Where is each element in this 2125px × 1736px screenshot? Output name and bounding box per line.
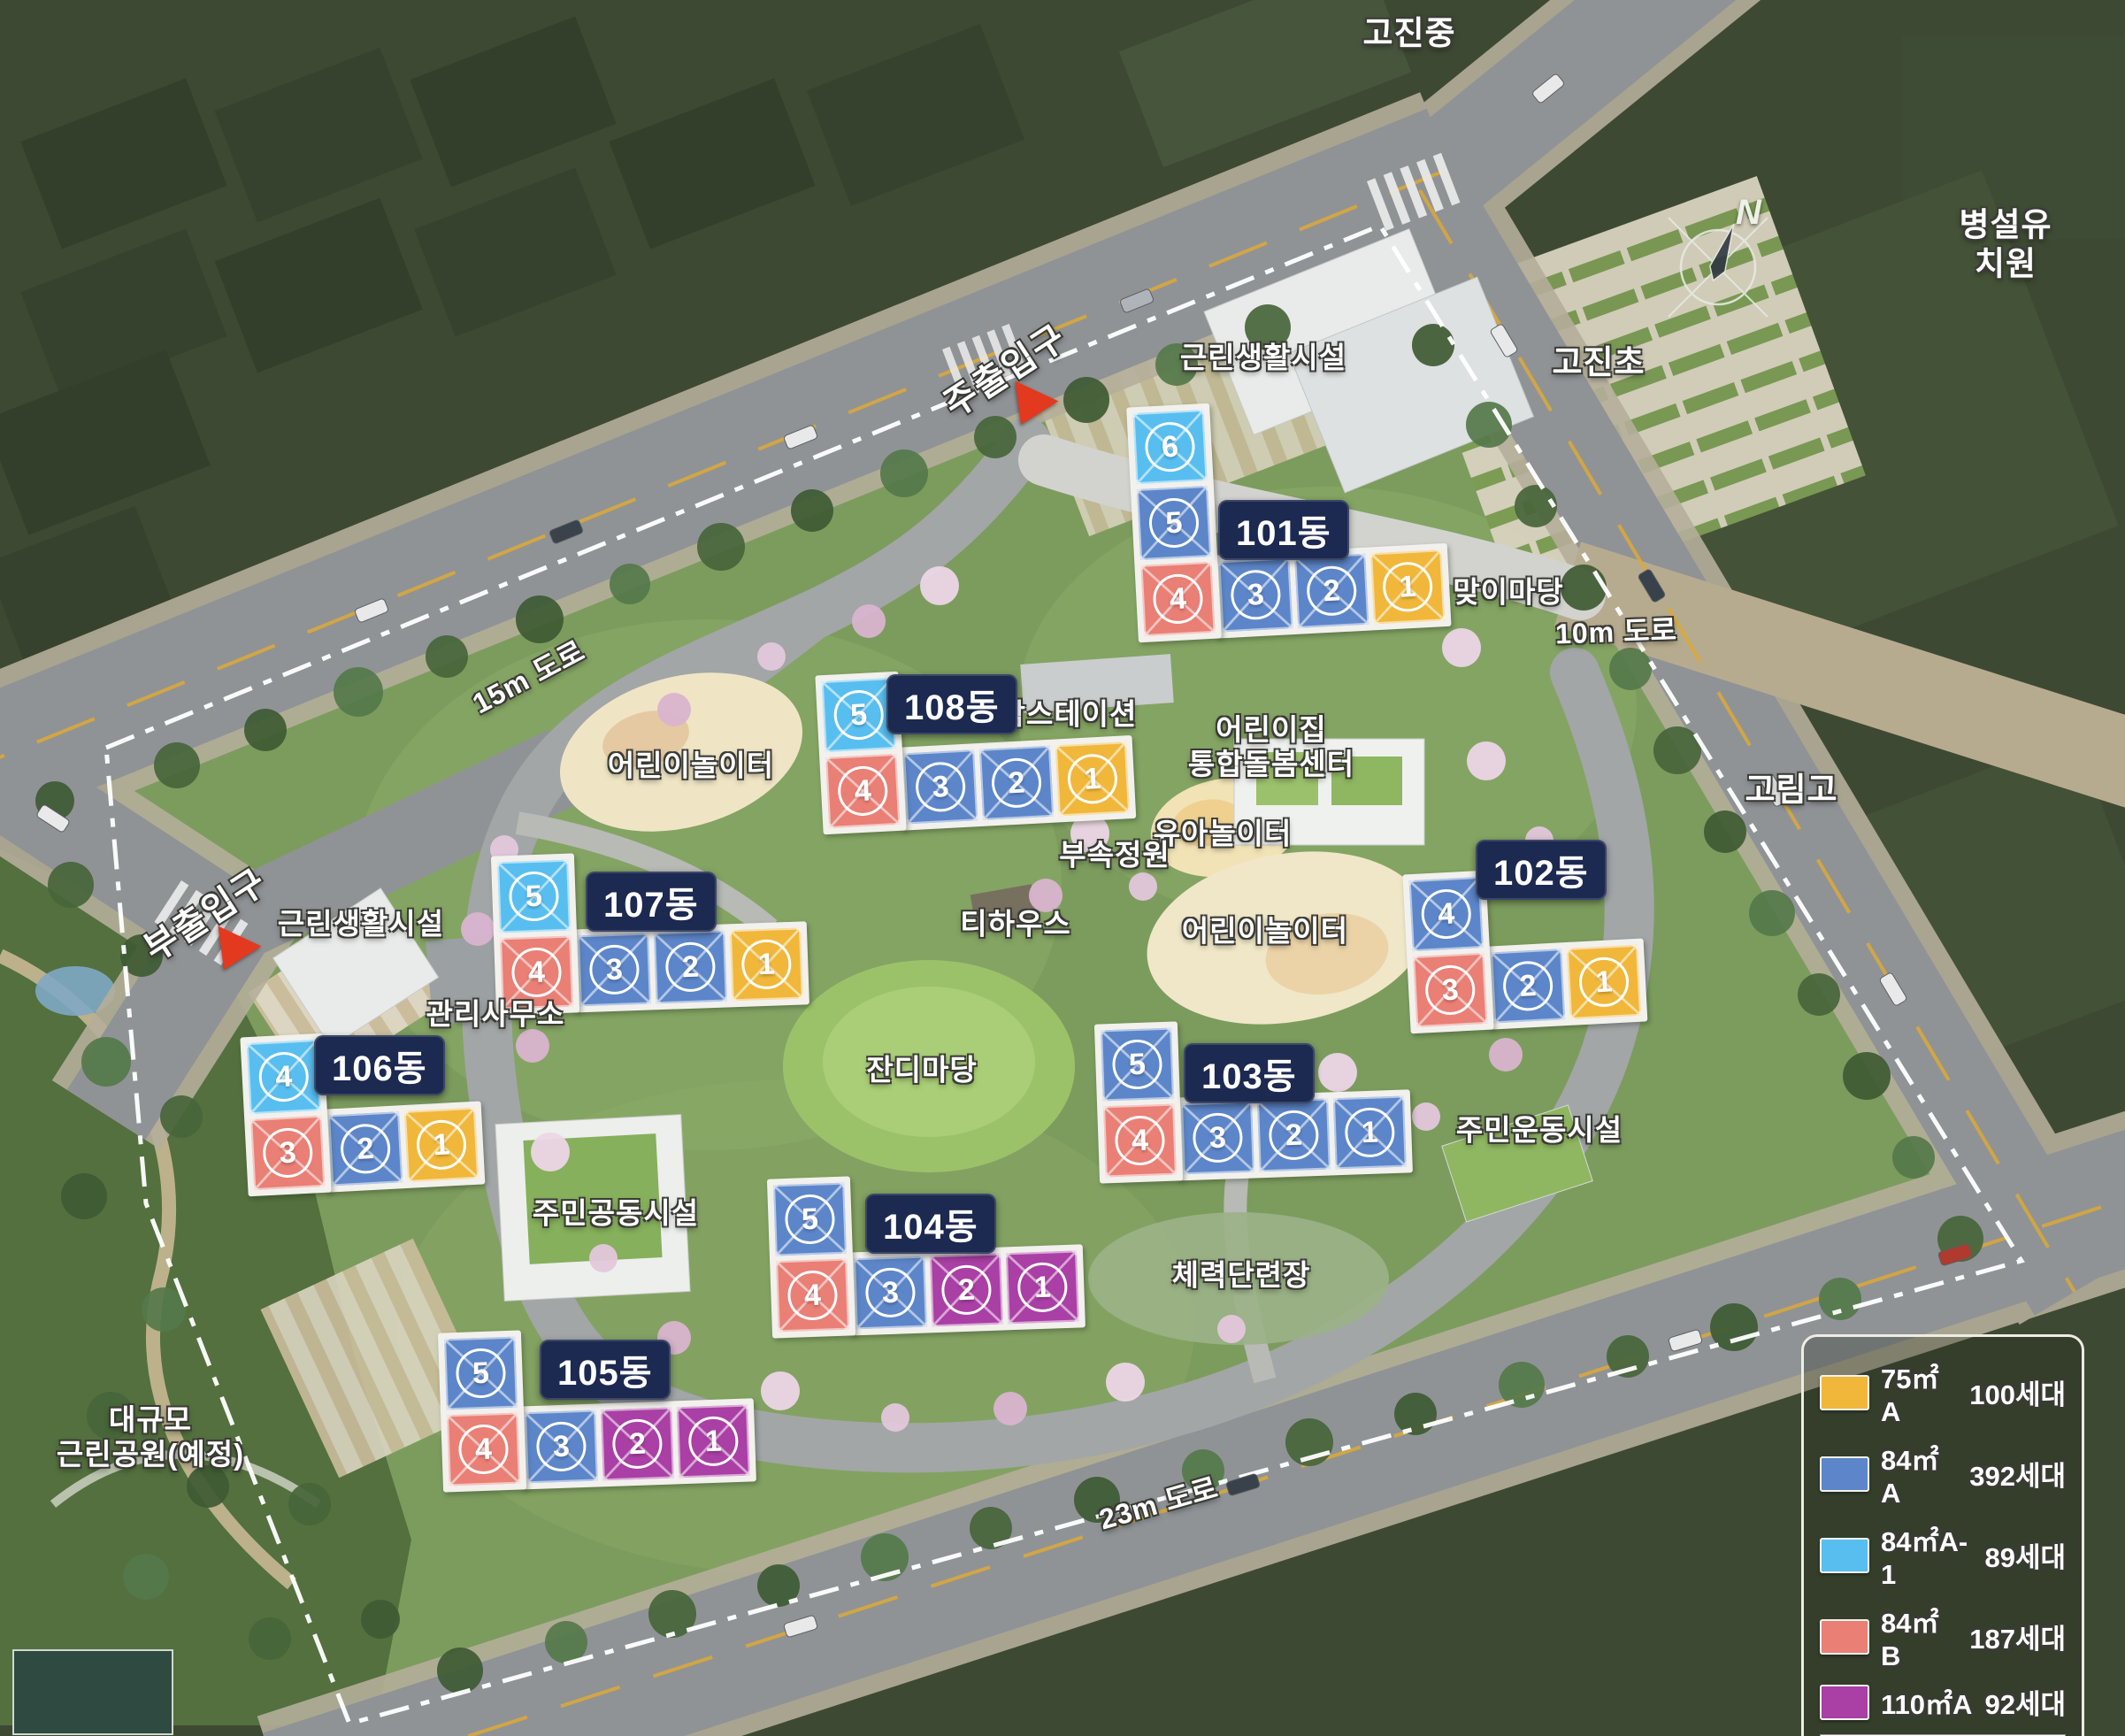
legend-chip-2	[1820, 1538, 1869, 1573]
building-107-wing-v: 54	[491, 853, 579, 1015]
label-neighborhood-facility-left: 근린생활시설	[278, 908, 444, 942]
unit-number: 5	[456, 1348, 507, 1399]
legend-count-0: 100세대	[1969, 1372, 2066, 1412]
building-107-wing-h: 321	[572, 921, 809, 1012]
building-102-wing-h: 21	[1484, 938, 1648, 1029]
legend-row-0: 75㎡A100세대	[1820, 1356, 2066, 1428]
building-106-label: 106동	[314, 1035, 445, 1095]
legend: 75㎡A100세대84㎡A392세대84㎡A-189세대84㎡B187세대110…	[1801, 1334, 2084, 1736]
unit-block-101-4: 4	[1140, 562, 1215, 636]
unit-block-104-1: 1	[1006, 1251, 1079, 1325]
unit-block-103-4: 4	[1103, 1104, 1177, 1178]
label-community-facility: 주민공동시설	[533, 1197, 699, 1232]
label-lawn-yard: 잔디마당	[866, 1054, 977, 1088]
label-kids-playground-center: 어린이놀이터	[1182, 915, 1348, 949]
site-plan-map: 654 321 54 321 54 321 43 21 54 321 54 32…	[0, 0, 2125, 1736]
unit-block-101-5: 5	[1137, 486, 1211, 560]
unit-block-106-4: 4	[247, 1040, 321, 1114]
unit-number: 1	[416, 1118, 468, 1171]
unit-block-107-2: 2	[654, 931, 727, 1004]
unit-block-105-2: 2	[601, 1408, 674, 1481]
unit-number: 3	[864, 1267, 916, 1318]
unit-block-103-1: 1	[1333, 1096, 1407, 1170]
unit-block-101-2: 2	[1294, 554, 1369, 628]
unit-number: 3	[1192, 1112, 1243, 1164]
unit-block-101-1: 1	[1370, 549, 1445, 624]
unit-number: 5	[785, 1194, 836, 1245]
building-104-label: 104동	[865, 1194, 996, 1254]
building-104: 54 321	[767, 1176, 855, 1338]
unit-number: 2	[340, 1123, 392, 1175]
unit-number: 4	[1420, 888, 1472, 941]
label-welcome-yard: 맞이마당	[1453, 576, 1563, 611]
unit-number: 6	[1144, 421, 1196, 473]
label-kindergarten: 병설유치원	[1946, 205, 2066, 282]
unit-block-108-2: 2	[979, 746, 1054, 820]
unit-number: 3	[535, 1421, 587, 1472]
unit-number: 1	[1344, 1107, 1395, 1158]
unit-block-106-2: 2	[328, 1111, 403, 1186]
unit-block-105-3: 3	[525, 1410, 598, 1484]
legend-rows: 75㎡A100세대84㎡A392세대84㎡A-189세대84㎡B187세대110…	[1820, 1356, 2066, 1722]
label-high-school: 고림고	[1745, 771, 1837, 810]
unit-block-101-6: 6	[1132, 410, 1207, 484]
unit-block-106-1: 1	[404, 1108, 479, 1182]
legend-row-2: 84㎡A-189세대	[1820, 1519, 2066, 1591]
unit-number: 4	[511, 947, 563, 998]
unit-number: 1	[1066, 753, 1118, 805]
unit-number: 5	[1112, 1039, 1163, 1090]
unit-block-102-3: 3	[1413, 953, 1487, 1027]
unit-number: 1	[1578, 956, 1630, 1008]
legend-type-1: 84㎡A	[1881, 1438, 1958, 1509]
label-kids-playground-left: 어린이놀이터	[608, 749, 774, 784]
unit-number: 3	[262, 1127, 314, 1179]
unit-block-108-4: 4	[825, 754, 900, 828]
unit-block-105-5: 5	[444, 1337, 518, 1410]
unit-number: 4	[787, 1270, 839, 1321]
building-107-label: 107동	[586, 872, 717, 932]
building-108-wing-h: 321	[897, 735, 1137, 831]
building-101-wing-v: 654	[1126, 403, 1222, 643]
unit-number: 2	[940, 1264, 992, 1316]
unit-number: 5	[509, 871, 560, 922]
unit-number: 4	[257, 1051, 310, 1103]
building-105-wing-h: 321	[518, 1398, 756, 1489]
legend-type-0: 75㎡A	[1881, 1356, 1958, 1428]
building-105: 54 321	[438, 1330, 526, 1492]
unit-block-103-2: 2	[1257, 1099, 1331, 1172]
unit-number: 3	[915, 761, 967, 813]
building-104-wing-v: 54	[767, 1176, 855, 1338]
unit-block-102-2: 2	[1491, 949, 1565, 1023]
building-104-wing-h: 321	[848, 1244, 1086, 1335]
legend-row-3: 84㎡B187세대	[1820, 1601, 2066, 1672]
building-101-label: 101동	[1218, 500, 1349, 560]
unit-number: 4	[458, 1424, 510, 1475]
legend-chip-3	[1820, 1619, 1869, 1655]
building-108-label: 108동	[886, 674, 1017, 734]
building-101: 654 321	[1126, 403, 1222, 643]
unit-number: 1	[740, 939, 792, 990]
label-annex-garden: 부속정원	[1059, 839, 1170, 873]
unit-block-103-3: 3	[1181, 1102, 1254, 1175]
unit-number: 4	[1115, 1115, 1166, 1166]
legend-row-4: 110㎡A92세대	[1820, 1682, 2066, 1722]
unit-number: 2	[1268, 1110, 1319, 1161]
unit-block-104-2: 2	[930, 1254, 1003, 1327]
unit-block-107-5: 5	[497, 860, 571, 933]
label-fitness-area: 체력단련장	[1172, 1259, 1311, 1294]
label-elementary-school: 고진초	[1552, 343, 1645, 382]
legend-count-3: 187세대	[1969, 1617, 2066, 1656]
building-107: 54 321	[491, 853, 579, 1015]
unit-block-108-3: 3	[903, 749, 978, 824]
unit-block-102-1: 1	[1567, 945, 1641, 1019]
legend-row-1: 84㎡A392세대	[1820, 1438, 2066, 1509]
unit-number: 5	[1148, 497, 1201, 549]
unit-number: 2	[611, 1418, 663, 1470]
building-103-label: 103동	[1184, 1043, 1315, 1103]
building-105-label: 105동	[540, 1340, 671, 1400]
legend-chip-1	[1820, 1456, 1869, 1492]
unit-number: 5	[832, 689, 885, 741]
unit-block-105-1: 1	[677, 1405, 750, 1479]
unit-block-101-3: 3	[1218, 557, 1293, 632]
label-tea-house: 티하우스	[960, 908, 1070, 942]
unit-number: 3	[1424, 964, 1477, 1017]
unit-block-107-1: 1	[730, 928, 803, 1002]
unit-block-102-4: 4	[1409, 877, 1484, 951]
unit-block-108-5: 5	[822, 678, 896, 752]
label-management-office: 관리사무소	[426, 998, 565, 1033]
building-102-label: 102동	[1476, 840, 1607, 900]
building-103: 54 321	[1094, 1021, 1183, 1183]
unit-block-104-4: 4	[776, 1259, 849, 1333]
legend-count-1: 392세대	[1969, 1454, 2066, 1494]
legend-chip-4	[1820, 1685, 1869, 1720]
legend-count-4: 92세대	[1984, 1682, 2066, 1722]
unit-number: 1	[1016, 1262, 1068, 1313]
legend-count-2: 89세대	[1984, 1535, 2066, 1575]
legend-type-3: 84㎡B	[1881, 1601, 1958, 1672]
label-toddler-playground: 유아놀이터	[1154, 818, 1293, 852]
legend-type-4: 110㎡A	[1881, 1682, 1973, 1722]
building-103-wing-v: 54	[1094, 1021, 1183, 1183]
legend-type-2: 84㎡A-1	[1881, 1519, 1973, 1591]
label-neighborhood-facility-top: 근린생활시설	[1180, 342, 1346, 376]
unit-number: 1	[687, 1416, 739, 1467]
unit-number: 2	[1306, 565, 1358, 617]
unit-number: 2	[664, 941, 716, 993]
unit-number: 2	[1502, 960, 1554, 1012]
unit-block-104-5: 5	[773, 1183, 847, 1256]
label-daycare-center: 어린이집 통합돌봄센터	[1188, 713, 1354, 782]
label-road-10m: 10m 도로	[1554, 614, 1677, 652]
unit-number: 3	[588, 944, 640, 995]
unit-block-107-3: 3	[578, 933, 651, 1007]
unit-block-103-5: 5	[1101, 1028, 1174, 1102]
unit-number: 4	[1152, 572, 1204, 625]
compass-n-label: N	[1736, 193, 1761, 233]
building-106-wing-h: 21	[322, 1101, 486, 1192]
label-middle-school: 고진중	[1362, 14, 1455, 53]
label-residents-sports: 주민운동시설	[1456, 1114, 1623, 1148]
unit-number: 2	[991, 757, 1043, 809]
unit-block-104-3: 3	[854, 1256, 927, 1330]
label-large-park: 대규모 근린공원(예정)	[57, 1403, 244, 1472]
building-105-wing-v: 54	[438, 1330, 526, 1492]
unit-block-105-4: 4	[447, 1413, 520, 1486]
unit-number: 4	[837, 765, 889, 818]
label-mom-station: 맘스테이션	[999, 698, 1138, 733]
unit-block-106-3: 3	[250, 1116, 325, 1190]
unit-block-108-1: 1	[1055, 741, 1130, 816]
legend-chip-0	[1820, 1375, 1869, 1410]
unit-number: 1	[1382, 561, 1434, 613]
unit-number: 3	[1230, 569, 1282, 621]
